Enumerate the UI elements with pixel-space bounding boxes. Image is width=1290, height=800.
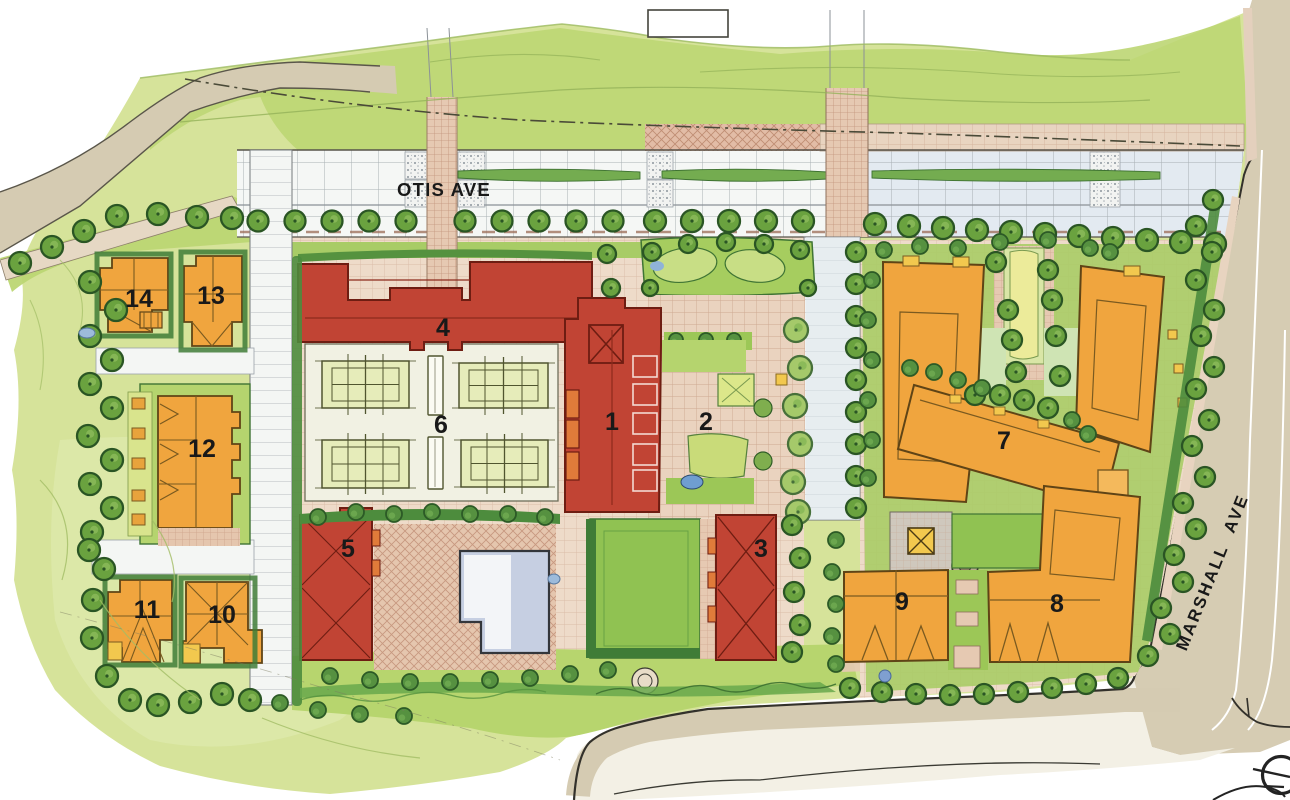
svg-text:9: 9 (895, 588, 909, 616)
svg-text:1: 1 (605, 408, 619, 436)
svg-text:OTIS AVE: OTIS AVE (397, 179, 491, 200)
svg-text:6: 6 (434, 411, 448, 439)
svg-text:5: 5 (341, 535, 355, 563)
svg-text:8: 8 (1050, 590, 1064, 618)
svg-text:14: 14 (125, 285, 153, 313)
svg-text:12: 12 (188, 435, 216, 463)
svg-text:3: 3 (754, 535, 768, 563)
svg-text:13: 13 (197, 282, 225, 310)
svg-text:11: 11 (134, 596, 161, 624)
svg-text:7: 7 (997, 427, 1011, 455)
svg-text:10: 10 (208, 601, 236, 629)
svg-text:4: 4 (436, 314, 450, 342)
svg-text:2: 2 (699, 408, 713, 436)
